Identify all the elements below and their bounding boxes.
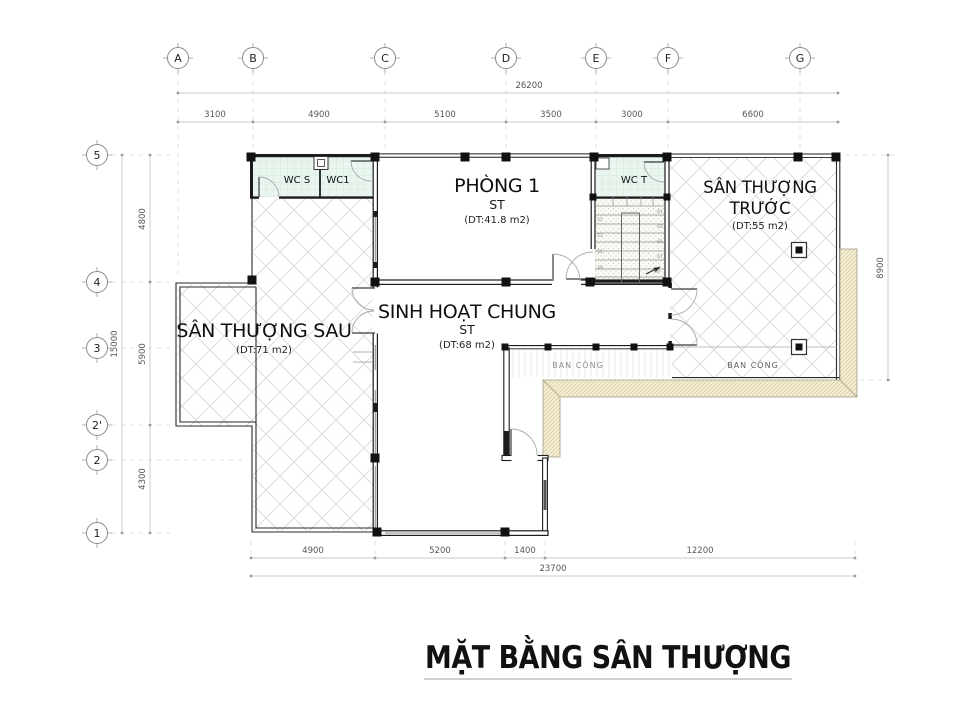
room-sublabel-sinh-hoat-chung: ST: [459, 322, 475, 337]
stair-step-number: 67: [657, 254, 663, 260]
room-label-sinh-hoat-chung: SINH HOẠT CHUNG: [378, 301, 556, 323]
drawing-title: MẶT BẰNG SÂN THƯỢNG: [424, 636, 792, 679]
room-sublabel-phong1: ST: [489, 197, 505, 212]
dim-left-seg: 5900: [138, 343, 148, 365]
stair-step-number: 53: [597, 233, 603, 239]
dim-top-total: 26200: [515, 81, 542, 91]
grid-bubble-2: 2: [82, 445, 112, 475]
room-area-phong1: (DT:41.8 m2): [464, 215, 530, 226]
room-label-san-thuong-sau: SÂN THƯỢNG SAU: [176, 319, 351, 342]
grid-bubbles-columns: A B C D E F G: [163, 43, 815, 73]
grid-bubble-1: 1: [82, 518, 112, 548]
wc-s-floor: [252, 156, 374, 197]
room-label-wc-t: WC T: [621, 175, 648, 186]
svg-text:G: G: [796, 52, 805, 65]
svg-text:A: A: [174, 52, 182, 65]
dim-right-total: 8900: [876, 257, 886, 279]
svg-text:1: 1: [94, 527, 101, 540]
svg-text:5: 5: [94, 149, 101, 162]
stair-step-number: 69: [654, 269, 660, 275]
grid-bubble-4: 4: [82, 267, 112, 297]
title-text: MẶT BẰNG SÂN THƯỢNG: [425, 636, 791, 676]
grid-bubble-2p: 2': [82, 410, 112, 440]
dim-bottom-seg: 12200: [686, 546, 713, 556]
grid-bubble-G: G: [785, 43, 815, 73]
label-balcony-left: BAN CÔNG: [552, 359, 604, 370]
dim-left-seg: 4300: [138, 468, 148, 490]
svg-text:F: F: [665, 52, 671, 65]
dim-top-seg: 4900: [308, 110, 330, 120]
room-area-san-thuong-sau: (DT:71 m2): [236, 345, 292, 356]
grid-bubbles-rows: 5 4 3 2' 2 1: [82, 140, 112, 548]
svg-text:B: B: [249, 52, 257, 65]
dim-top-seg: 3100: [204, 110, 226, 120]
grid-bubble-F: F: [653, 43, 683, 73]
svg-text:C: C: [381, 52, 389, 65]
grid-bubble-E: E: [581, 43, 611, 73]
svg-text:2: 2: [94, 454, 101, 467]
svg-text:D: D: [502, 52, 510, 65]
grid-bubble-C: C: [370, 43, 400, 73]
dim-top-seg: 3000: [621, 110, 643, 120]
room-label-phong1: PHÒNG 1: [454, 173, 540, 197]
dim-left-seg: 4800: [138, 208, 148, 230]
room-area-san-thuong-truoc: (DT:55 m2): [732, 221, 788, 232]
grid-bubble-3: 3: [82, 333, 112, 363]
stair-step-number: 49: [597, 265, 603, 271]
dim-bottom-seg: 5200: [429, 546, 451, 556]
room-label-wc1: WC1: [326, 175, 349, 186]
grid-bubble-5: 5: [82, 140, 112, 170]
svg-text:3: 3: [94, 342, 101, 355]
room-label-san-thuong-truoc-2: TRƯỚC: [729, 199, 791, 218]
floor-plan-canvas: 55 53 51 49 61 63 65 67 69 WC S WC1: [0, 0, 960, 704]
stair-step-number: 63: [657, 224, 663, 230]
svg-text:2': 2': [92, 419, 102, 432]
dim-top-seg: 3500: [540, 110, 562, 120]
grid-bubble-D: D: [491, 43, 521, 73]
grid-bubble-B: B: [238, 43, 268, 73]
room-area-sinh-hoat-chung: (DT:68 m2): [439, 340, 495, 351]
dim-bottom-total: 23700: [539, 564, 566, 574]
stair-step-number: 61: [657, 209, 663, 215]
stair-step-number: 55: [597, 217, 603, 223]
grid-bubble-A: A: [163, 43, 193, 73]
stair-step-number: 51: [597, 249, 603, 255]
stair-step-number: 65: [657, 239, 663, 245]
dim-bottom-seg: 4900: [302, 546, 324, 556]
room-san-thuong-sau: [176, 198, 375, 532]
svg-text:E: E: [593, 52, 600, 65]
svg-text:4: 4: [94, 276, 101, 289]
dim-top-seg: 5100: [434, 110, 456, 120]
dim-left-total: 15000: [110, 330, 120, 357]
dim-top-seg: 6600: [742, 110, 764, 120]
floor-plan-sheet: 55 53 51 49 61 63 65 67 69 WC S WC1: [0, 0, 960, 704]
room-label-wc-s: WC S: [284, 175, 310, 186]
label-balcony-right: BAN CÔNG: [727, 359, 779, 370]
room-label-san-thuong-truoc-1: SÂN THƯỢNG: [703, 178, 817, 197]
dim-bottom-seg: 1400: [514, 546, 536, 556]
door-se-room: [511, 429, 537, 455]
